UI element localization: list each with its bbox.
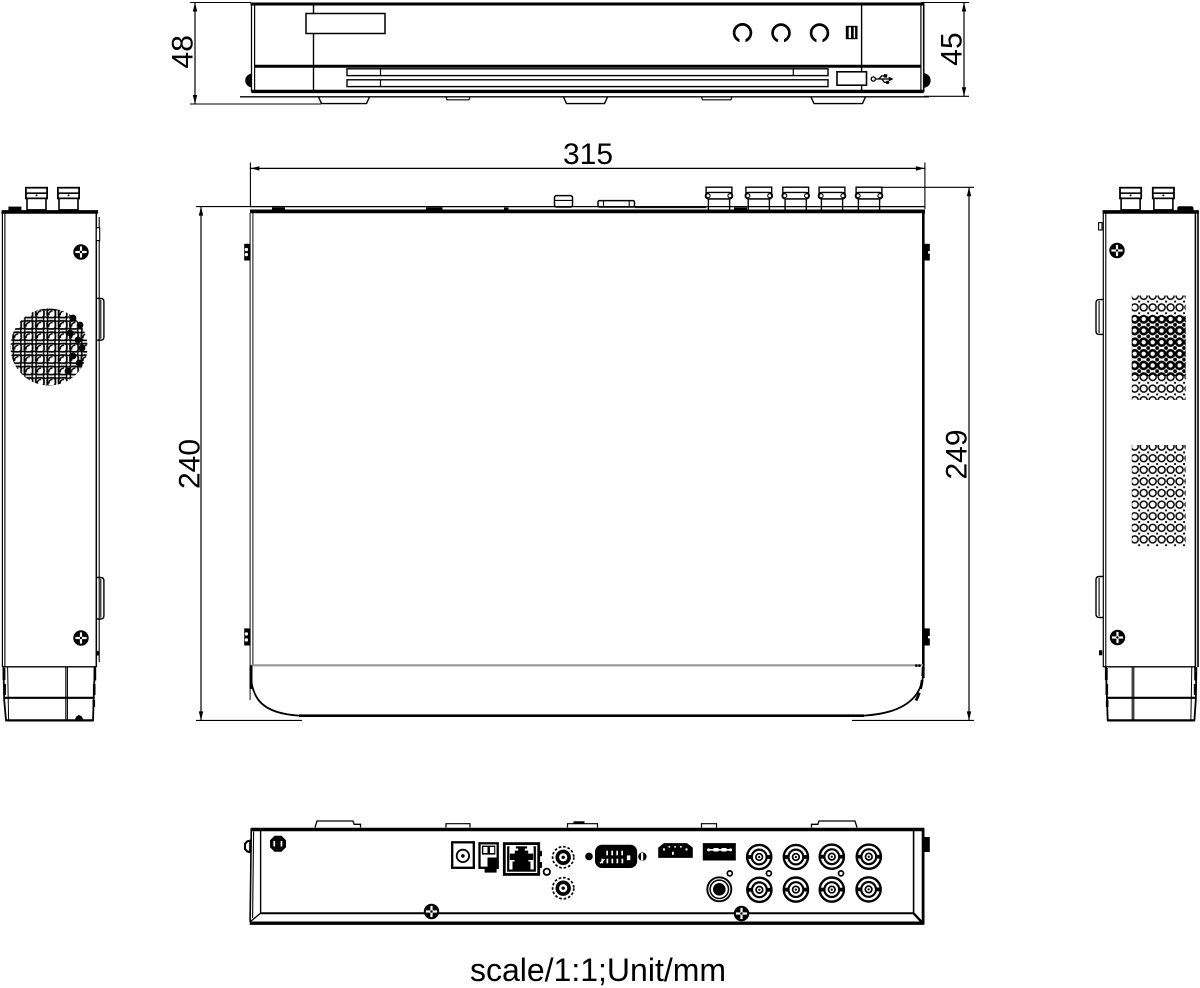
svg-text:scale/1:1;Unit/mm: scale/1:1;Unit/mm [470,952,726,988]
svg-text:315: 315 [563,138,613,171]
svg-text:240: 240 [173,439,206,489]
svg-text:249: 249 [941,429,974,479]
svg-text:48: 48 [167,35,200,68]
svg-text:45: 45 [936,32,969,65]
